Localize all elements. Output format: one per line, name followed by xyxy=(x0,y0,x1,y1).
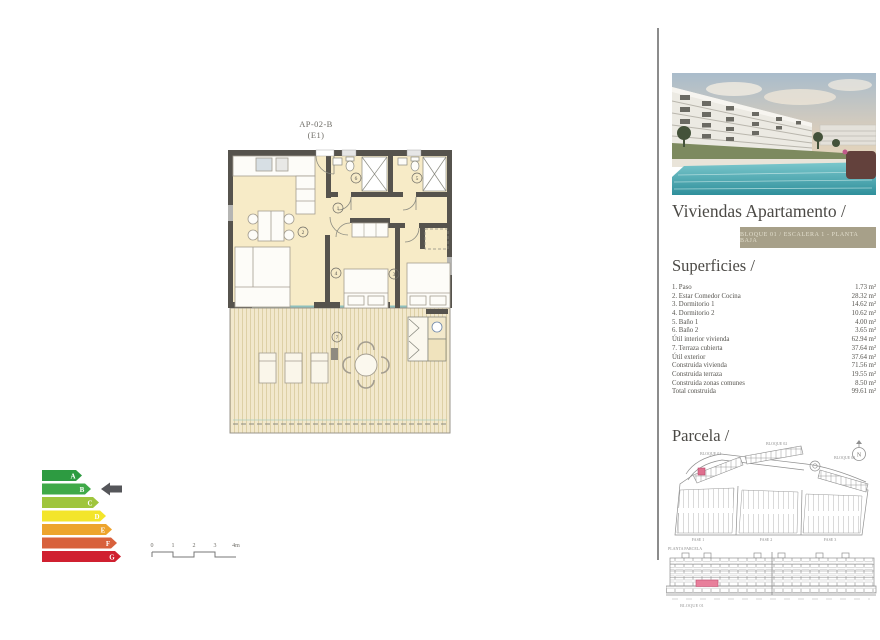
svg-text:F: F xyxy=(106,540,110,548)
fase2-label: FASE 2 xyxy=(760,537,772,542)
energy-bar-a xyxy=(42,470,82,481)
svg-text:2: 2 xyxy=(193,543,196,549)
svg-text:1: 1 xyxy=(172,543,175,549)
cloud xyxy=(828,79,872,91)
svg-text:7: 7 xyxy=(336,335,339,341)
energy-rating-chart: A B C D E F G xyxy=(36,462,136,566)
floorplan-title: AP-02-B (E1) xyxy=(250,119,382,141)
svg-text:B: B xyxy=(80,486,85,494)
scale-bar-line xyxy=(152,552,236,557)
building-render-photo xyxy=(672,73,876,195)
superficies-heading: Superficies / xyxy=(672,256,878,276)
superficie-row: 1. Paso1.73 m² xyxy=(672,284,876,293)
energy-rating-pointer-icon xyxy=(101,483,122,496)
closet-bedroom4 xyxy=(352,223,388,237)
superficie-row: Útil exterior37.64 m² xyxy=(672,354,876,363)
highlighted-unit-siteplan xyxy=(698,468,705,475)
building-elevation: BLOQUE 01 xyxy=(666,550,880,612)
page-title: Viviendas Apartamento / xyxy=(672,201,878,222)
svg-text:6: 6 xyxy=(355,176,358,182)
svg-text:G: G xyxy=(109,553,115,561)
svg-text:4: 4 xyxy=(335,271,338,277)
pool xyxy=(672,162,876,195)
superficie-row: 3. Dormitorio 114.62 m² xyxy=(672,301,876,310)
bed-dorm2 xyxy=(344,269,388,308)
svg-text:4m: 4m xyxy=(232,543,240,549)
fase3-label: FASE 3 xyxy=(824,537,836,542)
floorplan-title-line2: (E1) xyxy=(250,130,382,141)
flowers xyxy=(843,150,848,155)
sun-loungers xyxy=(259,348,338,383)
superficie-row: Útil interior vivienda62.94 m² xyxy=(672,336,876,345)
parcela-site-plan: BLOQUE 01 BLOQUE 02 BLOQUE 03 FASE 1 FAS… xyxy=(666,440,878,552)
floorplan-title-line1: AP-02-B xyxy=(250,119,382,130)
svg-text:3: 3 xyxy=(214,543,217,549)
scale-bar: 0 1 2 3 4m xyxy=(146,538,242,562)
apartment-floorplan: 1 2 3 4 5 6 7 xyxy=(222,145,458,445)
elevation-caption: BLOQUE 01 xyxy=(680,603,704,608)
svg-text:1: 1 xyxy=(337,206,340,212)
bloque3-label: BLOQUE 03 xyxy=(834,455,855,460)
svg-text:2: 2 xyxy=(302,230,305,236)
svg-text:N: N xyxy=(857,453,862,459)
bloque2-label: BLOQUE 02 xyxy=(766,441,787,446)
parking-bands xyxy=(677,488,862,533)
superficie-row: 5. Baño 14.00 m² xyxy=(672,319,876,328)
superficie-row: Construida zonas comunes8.50 m² xyxy=(672,380,876,389)
terrace-storage xyxy=(408,309,448,361)
superficie-row: Construida vivienda71.56 m² xyxy=(672,362,876,371)
svg-text:A: A xyxy=(70,472,75,480)
block-location-badge-label: BLOQUE 01 / ESCALERA 1 - PLANTA BAJA xyxy=(740,232,876,244)
bed-dorm1 xyxy=(407,263,450,308)
superficies-table: 1. Paso1.73 m² 2. Estar Comedor Cocina28… xyxy=(672,284,876,397)
superficie-row: 6. Baño 23.65 m² xyxy=(672,327,876,336)
svg-text:C: C xyxy=(87,499,92,507)
bloque1-label: BLOQUE 01 xyxy=(700,451,721,456)
superficie-row: 7. Terraza cubierta37.64 m² xyxy=(672,345,876,354)
svg-text:3: 3 xyxy=(393,272,396,278)
block-location-badge: BLOQUE 01 / ESCALERA 1 - PLANTA BAJA xyxy=(740,227,876,248)
panel-separator-line xyxy=(657,28,659,560)
superficie-row: Total construida99.61 m² xyxy=(672,388,876,397)
cloud xyxy=(764,89,836,105)
svg-text:D: D xyxy=(94,513,99,521)
parked-car xyxy=(846,151,876,179)
svg-text:E: E xyxy=(101,526,106,534)
superficie-row: 4. Dormitorio 210.62 m² xyxy=(672,310,876,319)
elevation-structure xyxy=(666,552,876,599)
far-building xyxy=(820,125,876,145)
superficie-row: Construida terraza19.55 m² xyxy=(672,371,876,380)
fase1-label: FASE 1 xyxy=(692,537,704,542)
svg-text:5: 5 xyxy=(416,176,419,182)
superficie-row: 2. Estar Comedor Cocina28.32 m² xyxy=(672,293,876,302)
svg-text:0: 0 xyxy=(151,543,154,549)
sofa xyxy=(235,247,290,307)
highlighted-unit-elevation xyxy=(696,580,718,587)
cloud xyxy=(706,82,762,96)
